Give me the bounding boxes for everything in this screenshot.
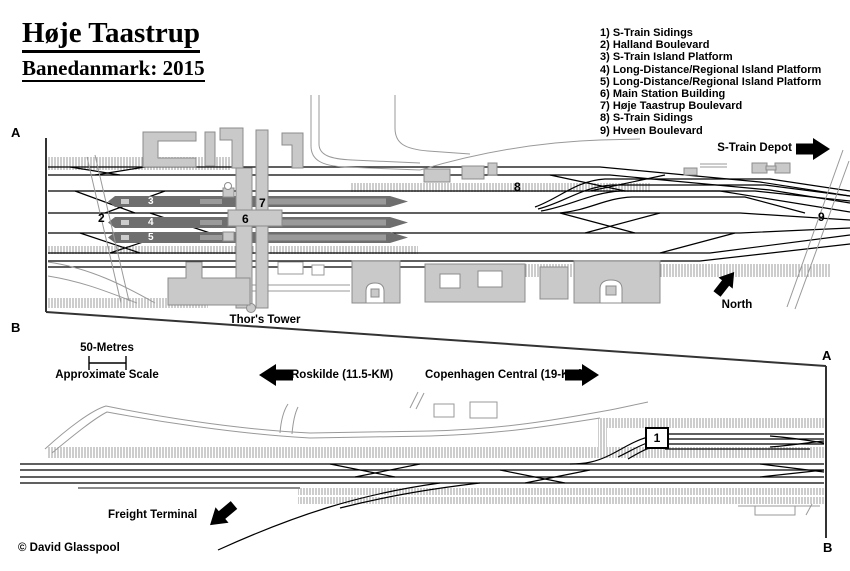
marker-9: 9 <box>818 211 825 223</box>
scale-bar <box>89 356 126 370</box>
roskilde-arrow-icon <box>259 364 293 386</box>
legend: 1) S-Train Sidings 2) Halland Boulevard … <box>600 27 821 137</box>
page-subtitle: Banedanmark: 2015 <box>22 56 205 82</box>
station-concourse <box>228 210 282 226</box>
marker-1-box: 1 <box>645 427 669 449</box>
s-train-depot-label: S-Train Depot <box>682 142 792 154</box>
marker-2: 2 <box>98 212 105 224</box>
legend-item: 1) S-Train Sidings <box>600 27 821 39</box>
marker-6: 6 <box>242 213 249 225</box>
section-letter-b-upper: B <box>11 321 20 334</box>
marker-5: 5 <box>148 233 154 243</box>
legend-item: 2) Halland Boulevard <box>600 39 821 51</box>
legend-item: 5) Long-Distance/Regional Island Platfor… <box>600 76 821 88</box>
section-line-diagonal <box>46 312 826 366</box>
depot-arrow-icon <box>796 138 830 160</box>
track-diagram-page: Høje Taastrup Banedanmark: 2015 1) S-Tra… <box>0 0 850 571</box>
copyright-label: © David Glasspool <box>18 542 120 554</box>
section-letter-a-upper: A <box>11 126 20 139</box>
copenhagen-central-label: Copenhagen Central (19-KM) <box>425 369 583 381</box>
freight-terminal-label: Freight Terminal <box>108 509 197 521</box>
legend-item: 8) S-Train Sidings <box>600 112 821 124</box>
marker-8: 8 <box>514 181 521 193</box>
marker-7: 7 <box>259 197 266 209</box>
thors-tower-label: Thor's Tower <box>205 314 325 326</box>
north-label: North <box>697 299 777 311</box>
roskilde-label: Roskilde (11.5-KM) <box>291 369 393 381</box>
section-letter-b-lower: B <box>823 541 832 554</box>
title-block: Høje Taastrup Banedanmark: 2015 <box>22 18 205 82</box>
freight-arrow-icon <box>204 497 241 533</box>
legend-item: 7) Høje Taastrup Boulevard <box>600 100 821 112</box>
legend-item: 9) Hveen Boulevard <box>600 125 821 137</box>
legend-item: 6) Main Station Building <box>600 88 821 100</box>
marker-1: 1 <box>654 431 661 445</box>
small-circle-structure <box>225 183 232 190</box>
marker-3: 3 <box>148 197 154 207</box>
halland-boulevard-road <box>87 157 121 303</box>
legend-item: 4) Long-Distance/Regional Island Platfor… <box>600 64 821 76</box>
depot-buildings <box>752 163 790 173</box>
legend-item: 3) S-Train Island Platform <box>600 51 821 63</box>
page-title: Høje Taastrup <box>22 18 200 53</box>
section-letter-a-lower: A <box>822 349 831 362</box>
marker-4: 4 <box>148 218 154 228</box>
scale-caption-label: Approximate Scale <box>32 369 182 381</box>
scale-distance-label: 50-Metres <box>57 342 157 354</box>
